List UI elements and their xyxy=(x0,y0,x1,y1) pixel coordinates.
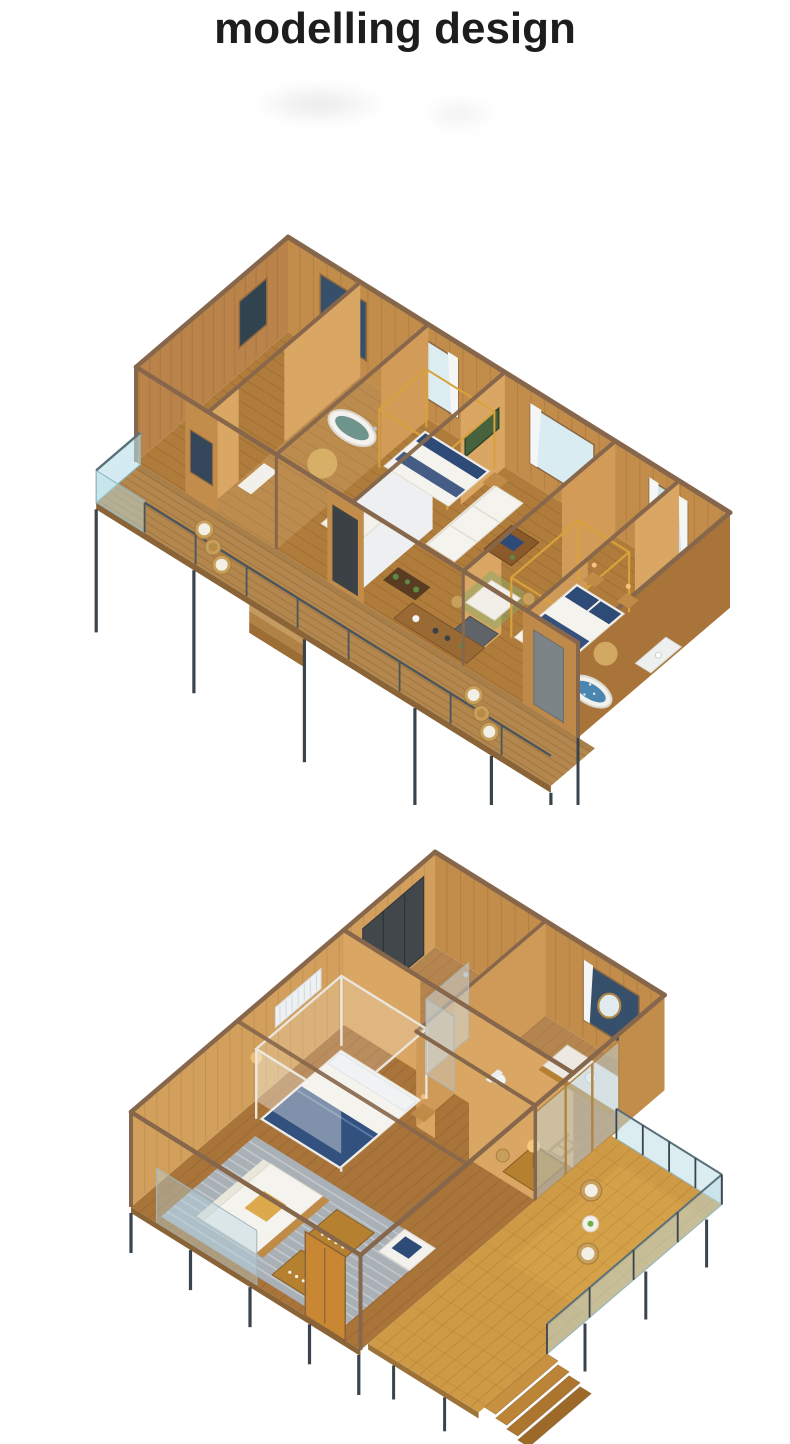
isometric-cutaway-render-long-cabin xyxy=(0,205,790,805)
page-title: modelling design xyxy=(0,0,790,54)
watermark-smudge-left xyxy=(252,82,387,126)
isometric-cutaway-render-small-cabin xyxy=(0,815,790,1444)
render-figure-bottom xyxy=(0,815,790,1444)
page: modelling design xyxy=(0,0,790,1444)
watermark-smudge-right xyxy=(420,94,498,134)
render-figure-top xyxy=(0,205,790,805)
